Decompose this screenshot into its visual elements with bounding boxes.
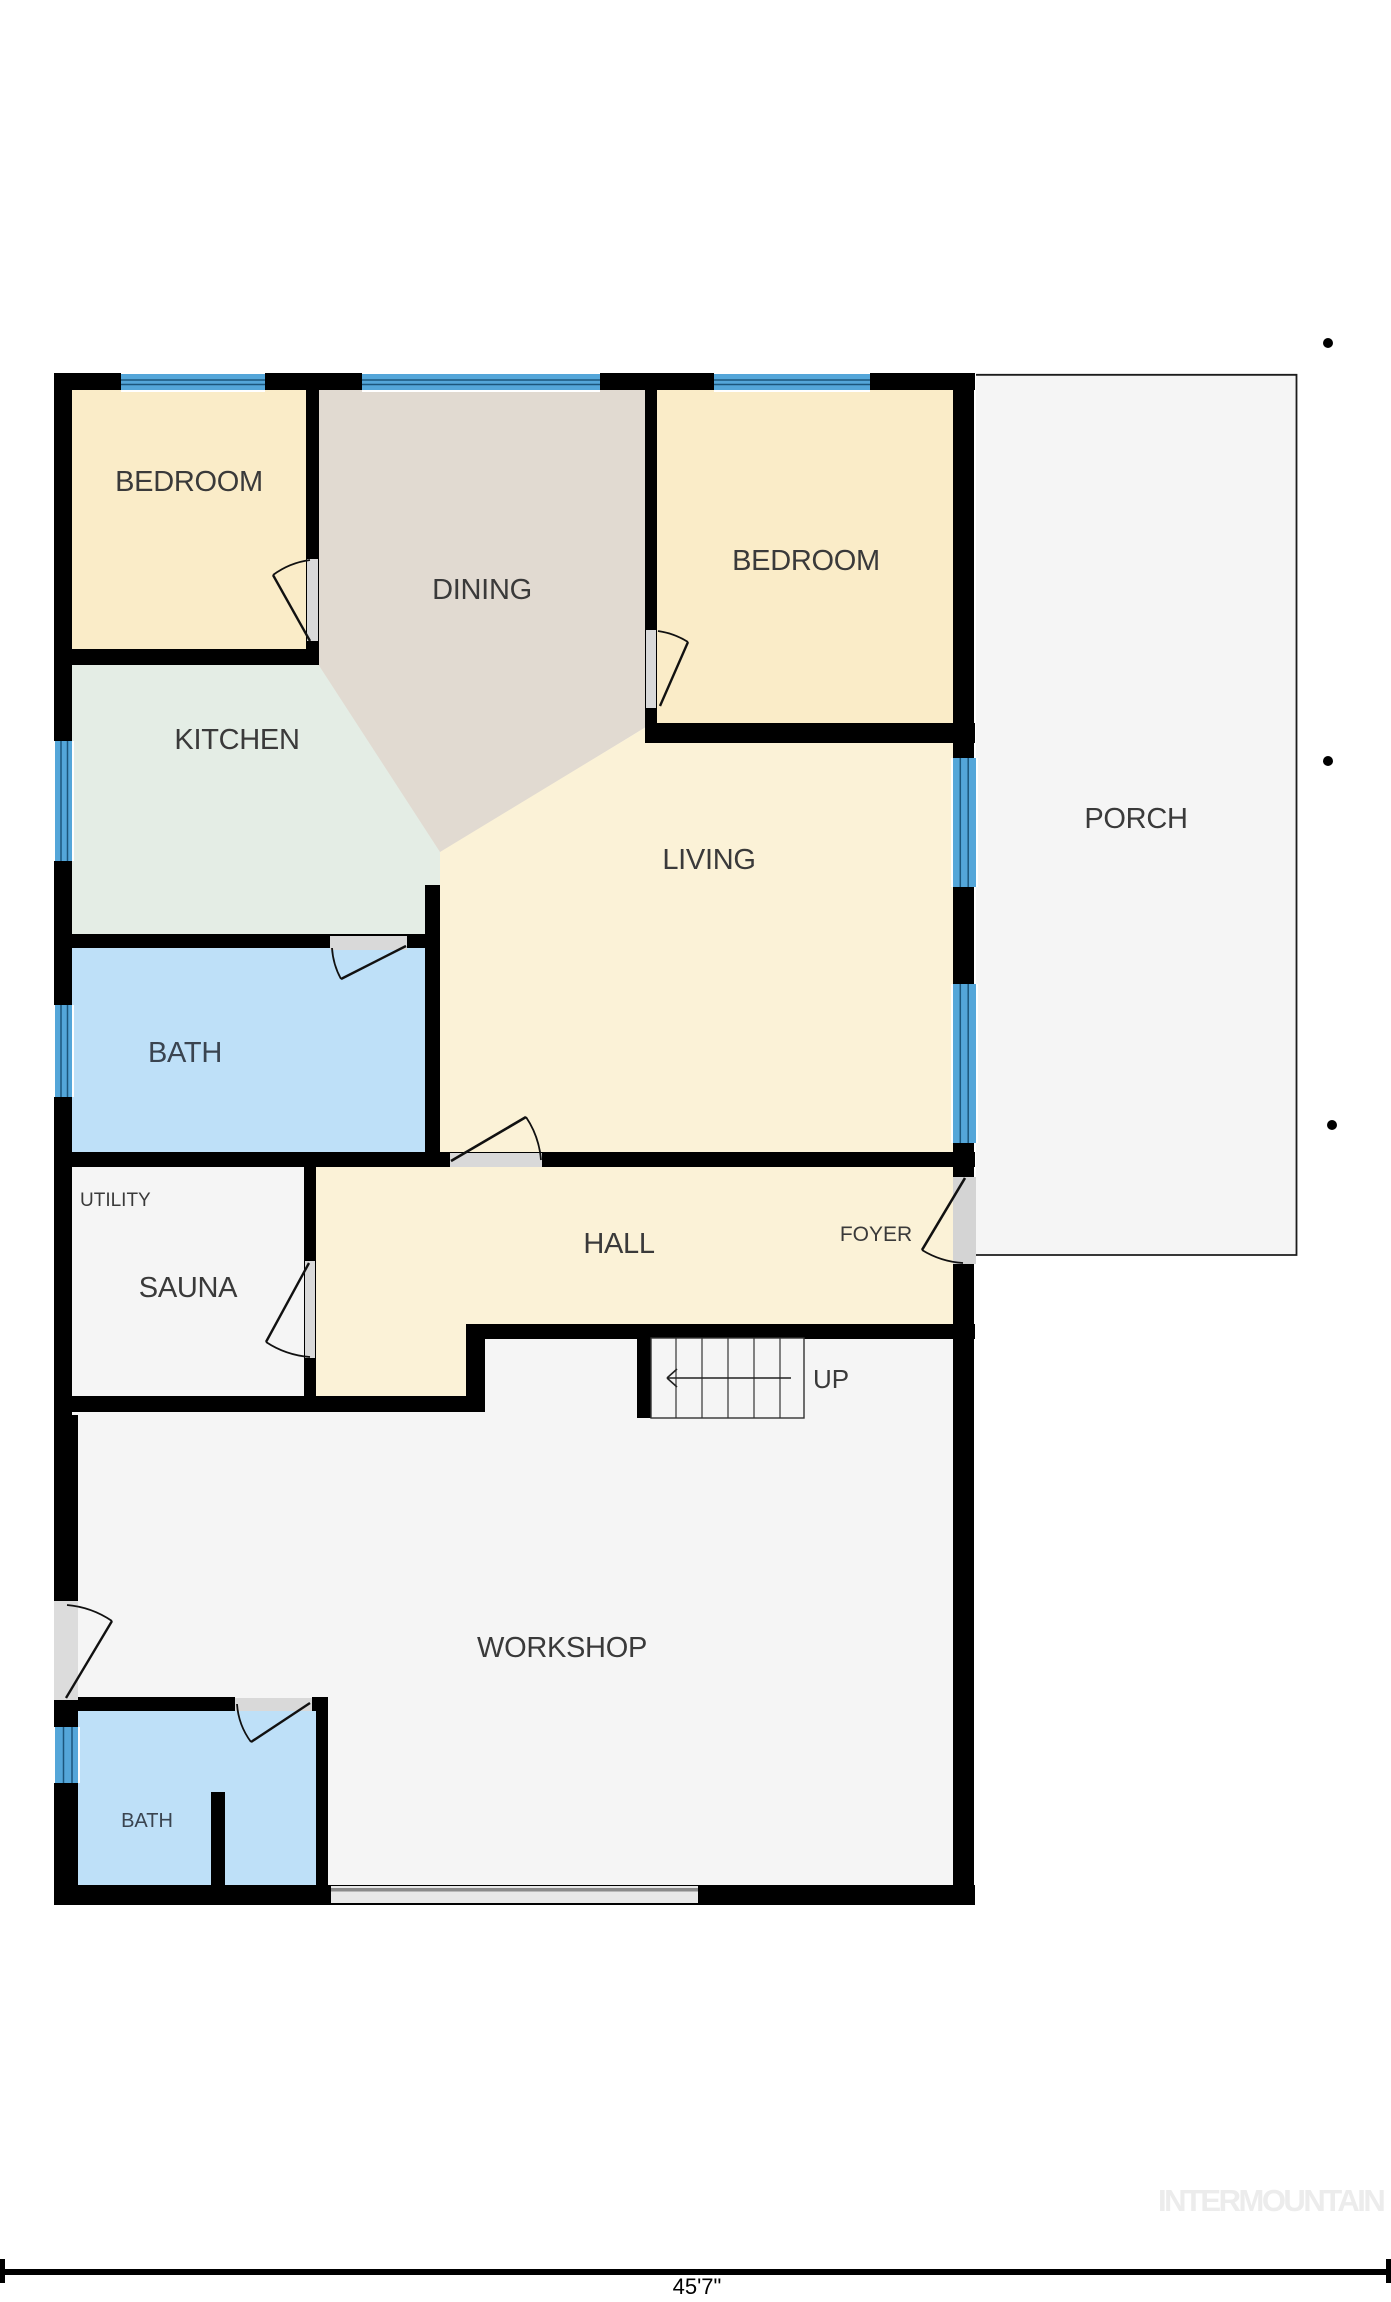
svg-text:KITCHEN: KITCHEN [174,724,299,756]
svg-text:WORKSHOP: WORKSHOP [477,1632,647,1664]
svg-text:BEDROOM: BEDROOM [115,466,263,498]
svg-text:BATH: BATH [148,1037,222,1069]
svg-text:BATH: BATH [121,1810,173,1832]
svg-text:PORCH: PORCH [1084,803,1187,835]
svg-text:INTERMOUNTAIN: INTERMOUNTAIN [1158,2183,1384,2218]
svg-text:HALL: HALL [583,1228,655,1260]
svg-text:BEDROOM: BEDROOM [732,545,880,577]
svg-text:45'7": 45'7" [673,2274,722,2299]
svg-text:FOYER: FOYER [840,1223,912,1246]
svg-text:SAUNA: SAUNA [139,1272,238,1304]
svg-text:UTILITY: UTILITY [80,1190,151,1211]
svg-text:UP: UP [813,1364,849,1394]
svg-text:DINING: DINING [432,574,532,606]
svg-text:LIVING: LIVING [662,844,755,876]
